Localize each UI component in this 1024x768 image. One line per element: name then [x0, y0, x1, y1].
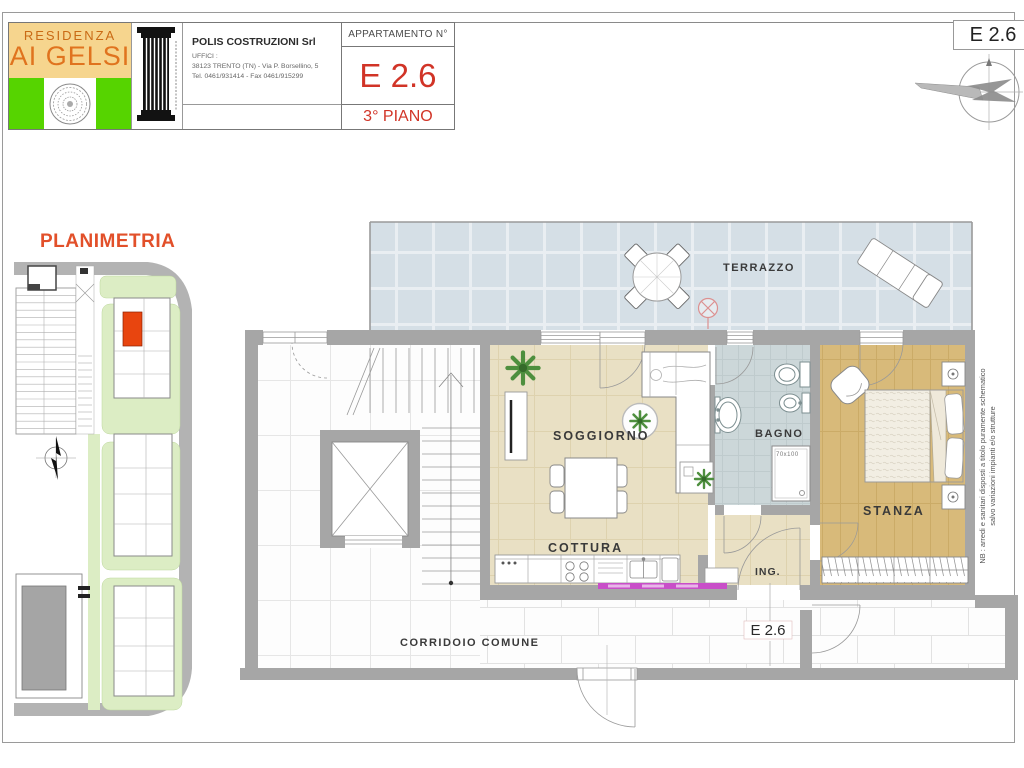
washbasin-icon	[715, 397, 741, 433]
apartment-label: APPARTAMENTO N°	[342, 23, 454, 47]
living-window	[541, 332, 600, 343]
builder-divider	[183, 104, 341, 105]
unit-door-label: E 2.6	[750, 622, 785, 639]
site-north-arrow-icon	[36, 436, 76, 480]
plant-icon	[507, 352, 538, 383]
apartment-floor: 3° PIANO	[342, 104, 454, 129]
desk	[680, 462, 713, 493]
kitchen-counter	[495, 555, 680, 583]
disclaimer-line2: salvo variazioni impianti e/o strutture	[988, 340, 998, 592]
kitchen-label: COTTURA	[548, 541, 623, 555]
doric-column-icon	[132, 23, 182, 129]
apartment-number: E 2.6	[342, 47, 454, 104]
builder-office: UFFICI :	[192, 52, 335, 62]
site-plan	[14, 256, 196, 722]
bedroom-label: STANZA	[863, 504, 925, 518]
unit-reference-box: E 2.6	[953, 20, 1024, 50]
nightstand-top	[942, 362, 965, 386]
tv-unit	[505, 392, 527, 460]
corridor-floor	[480, 600, 1005, 668]
terrace-label: TERRAZZO	[723, 262, 795, 274]
bidet-icon	[780, 393, 811, 413]
builder-name: POLIS COSTRUZIONI Srl	[192, 36, 335, 48]
entry-cabinet	[705, 568, 738, 583]
unit-reference-text: E 2.6	[970, 24, 1017, 47]
terrace-table-set	[624, 243, 690, 309]
site-building-a	[114, 298, 170, 398]
bath-label: BAGNO	[755, 428, 803, 440]
builder-phone: Tel. 0461/931414 - Fax 0461/915299	[192, 72, 335, 82]
logo-green-band	[9, 78, 131, 129]
bath-window	[727, 332, 753, 343]
living-label: SOGGIORNO	[553, 429, 649, 443]
title-block: RESIDENZA AI GELSI	[8, 22, 455, 130]
site-parking	[16, 288, 76, 434]
logo-text: RESIDENZA AI GELSI	[9, 23, 131, 78]
toilet-icon	[775, 362, 811, 387]
site-walkway	[76, 266, 94, 434]
kitchen-dimension-strip	[598, 583, 727, 589]
north-compass-icon	[915, 50, 1023, 132]
apartment-box: APPARTAMENTO N° E 2.6 3° PIANO	[341, 23, 454, 129]
elevator	[320, 430, 420, 548]
seal-icon	[47, 81, 93, 127]
site-structure-topleft	[28, 266, 56, 290]
column-logo	[131, 23, 182, 129]
disclaimer-note: NB : arredi e sanitari disposti a titolo…	[978, 340, 1000, 592]
entry-label: ING.	[755, 566, 781, 578]
site-building-c	[114, 586, 174, 696]
residence-logo: RESIDENZA AI GELSI	[9, 23, 131, 129]
corridor-label: CORRIDOIO COMUNE	[400, 637, 540, 649]
site-highlighted-unit	[123, 312, 142, 346]
logo-seal	[44, 78, 96, 129]
logo-line2: AI GELSI	[9, 41, 131, 72]
builder-address: 38123 TRENTO (TN) - Via P. Borsellino, 5	[192, 62, 335, 72]
wardrobe	[822, 557, 968, 583]
floorplan-sheet: RESIDENZA AI GELSI	[0, 0, 1024, 768]
site-plan-title: PLANIMETRIA	[40, 231, 175, 253]
disclaimer-line1: NB : arredi e sanitari disposti a titolo…	[978, 340, 988, 592]
kitchen-sink	[630, 558, 657, 578]
site-building-b	[114, 434, 172, 556]
site-courtyard-block	[16, 574, 82, 698]
floor-plan: TERRAZZO	[210, 215, 1024, 745]
nightstand-bottom	[942, 485, 965, 509]
builder-info: POLIS COSTRUZIONI Srl UFFICI : 38123 TRE…	[182, 23, 341, 129]
shower-size-label: 70x100	[776, 452, 799, 458]
